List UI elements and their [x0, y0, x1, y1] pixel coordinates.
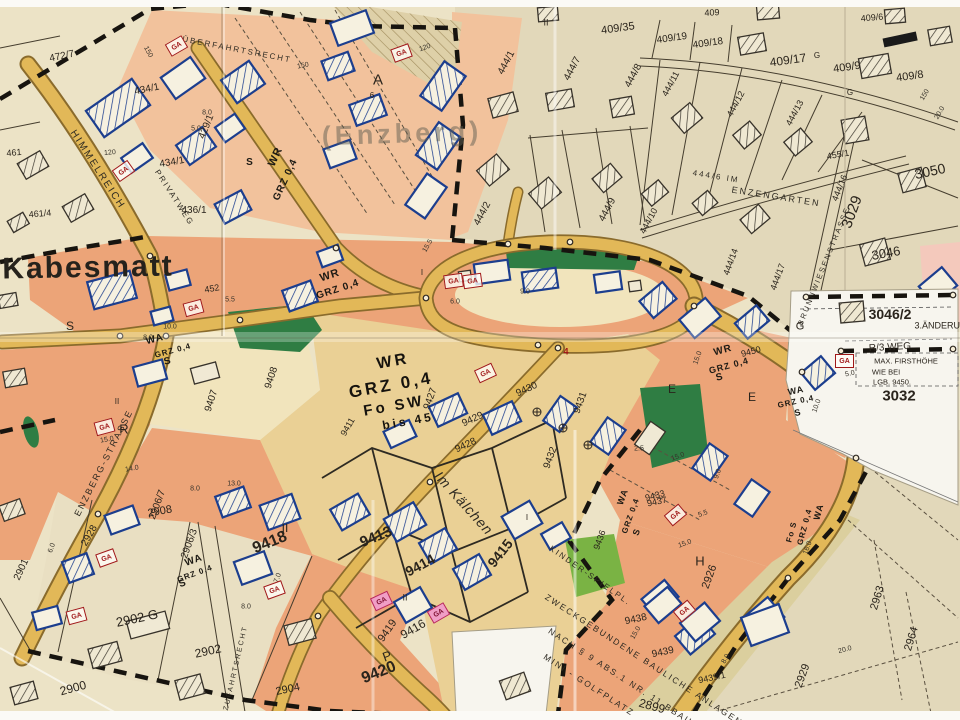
survey-marker-icon — [803, 294, 809, 300]
building — [928, 26, 952, 46]
building — [858, 54, 891, 79]
survey-marker-icon — [799, 369, 805, 375]
survey-marker-icon — [505, 241, 511, 247]
survey-marker-icon — [950, 346, 956, 352]
building — [458, 270, 471, 282]
survey-marker-icon — [535, 342, 541, 348]
survey-marker-icon — [691, 303, 697, 309]
building — [0, 293, 18, 309]
building — [628, 280, 641, 292]
building — [546, 89, 575, 111]
survey-marker-icon — [555, 345, 561, 351]
map-graphic — [0, 0, 960, 720]
survey-marker-icon — [117, 333, 123, 339]
survey-marker-icon — [315, 613, 321, 619]
building — [738, 33, 767, 55]
building — [3, 368, 27, 388]
building — [756, 4, 779, 20]
survey-marker-icon — [427, 479, 433, 485]
survey-marker-icon — [237, 317, 243, 323]
survey-marker-icon — [838, 348, 844, 354]
building — [594, 271, 622, 292]
survey-marker-icon — [950, 292, 956, 298]
building — [522, 268, 558, 293]
survey-marker-icon — [163, 333, 169, 339]
building — [884, 8, 905, 24]
building — [610, 96, 635, 118]
building — [537, 6, 558, 22]
zoning-map-scan: Kabesmatt(Enzberg)HIMMELREICHPRIVATWEGÜB… — [0, 0, 960, 720]
building — [474, 260, 510, 285]
survey-marker-icon — [567, 239, 573, 245]
survey-marker-icon — [853, 455, 859, 461]
survey-marker-icon — [333, 245, 339, 251]
building — [841, 116, 869, 144]
zone-shape — [452, 626, 556, 714]
amendment-overlay-shape — [839, 301, 865, 323]
survey-marker-icon — [95, 511, 101, 517]
survey-marker-icon — [147, 253, 153, 259]
survey-marker-icon — [785, 575, 791, 581]
survey-marker-icon — [423, 295, 429, 301]
